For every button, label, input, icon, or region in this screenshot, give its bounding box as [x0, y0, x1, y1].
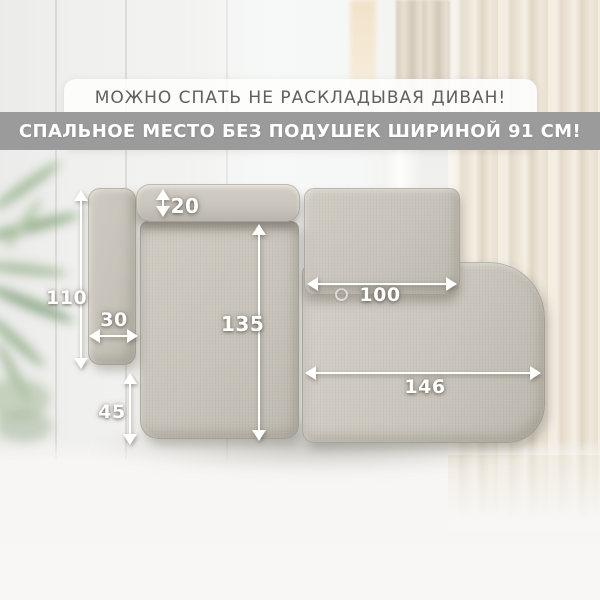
plant-leaf — [0, 259, 68, 279]
dimension-label-left-side-length: 110 — [46, 287, 80, 309]
promo-banner-text: СПАЛЬНОЕ МЕСТО БЕЗ ПОДУШЕК ШИРИНОЙ 91 СМ… — [19, 121, 581, 142]
double-arrow-horizontal-icon — [89, 329, 138, 343]
headline-text: МОЖНО СПАТЬ НЕ РАСКЛАДЫВАЯ ДИВАН! — [64, 84, 537, 112]
dimension-label-bolster-depth: 20 — [168, 194, 202, 218]
dimension-label-armrest-width: 30 — [98, 309, 130, 331]
sofa-seat-section — [140, 221, 299, 439]
dimension-label-seat-depth: 135 — [221, 312, 261, 336]
dimension-label-chaise-width: 146 — [402, 376, 448, 398]
product-image: МОЖНО СПАТЬ НЕ РАСКЛАДЫВАЯ ДИВАН! СПАЛЬН… — [0, 0, 600, 600]
dimension-label-backrest-width: 100 — [357, 284, 403, 306]
double-arrow-vertical-icon — [74, 190, 88, 369]
plant-leaf — [0, 410, 52, 442]
promo-banner: СПАЛЬНОЕ МЕСТО БЕЗ ПОДУШЕК ШИРИНОЙ 91 СМ… — [0, 112, 600, 150]
dimension-label-front-seat-depth: 45 — [96, 401, 128, 423]
